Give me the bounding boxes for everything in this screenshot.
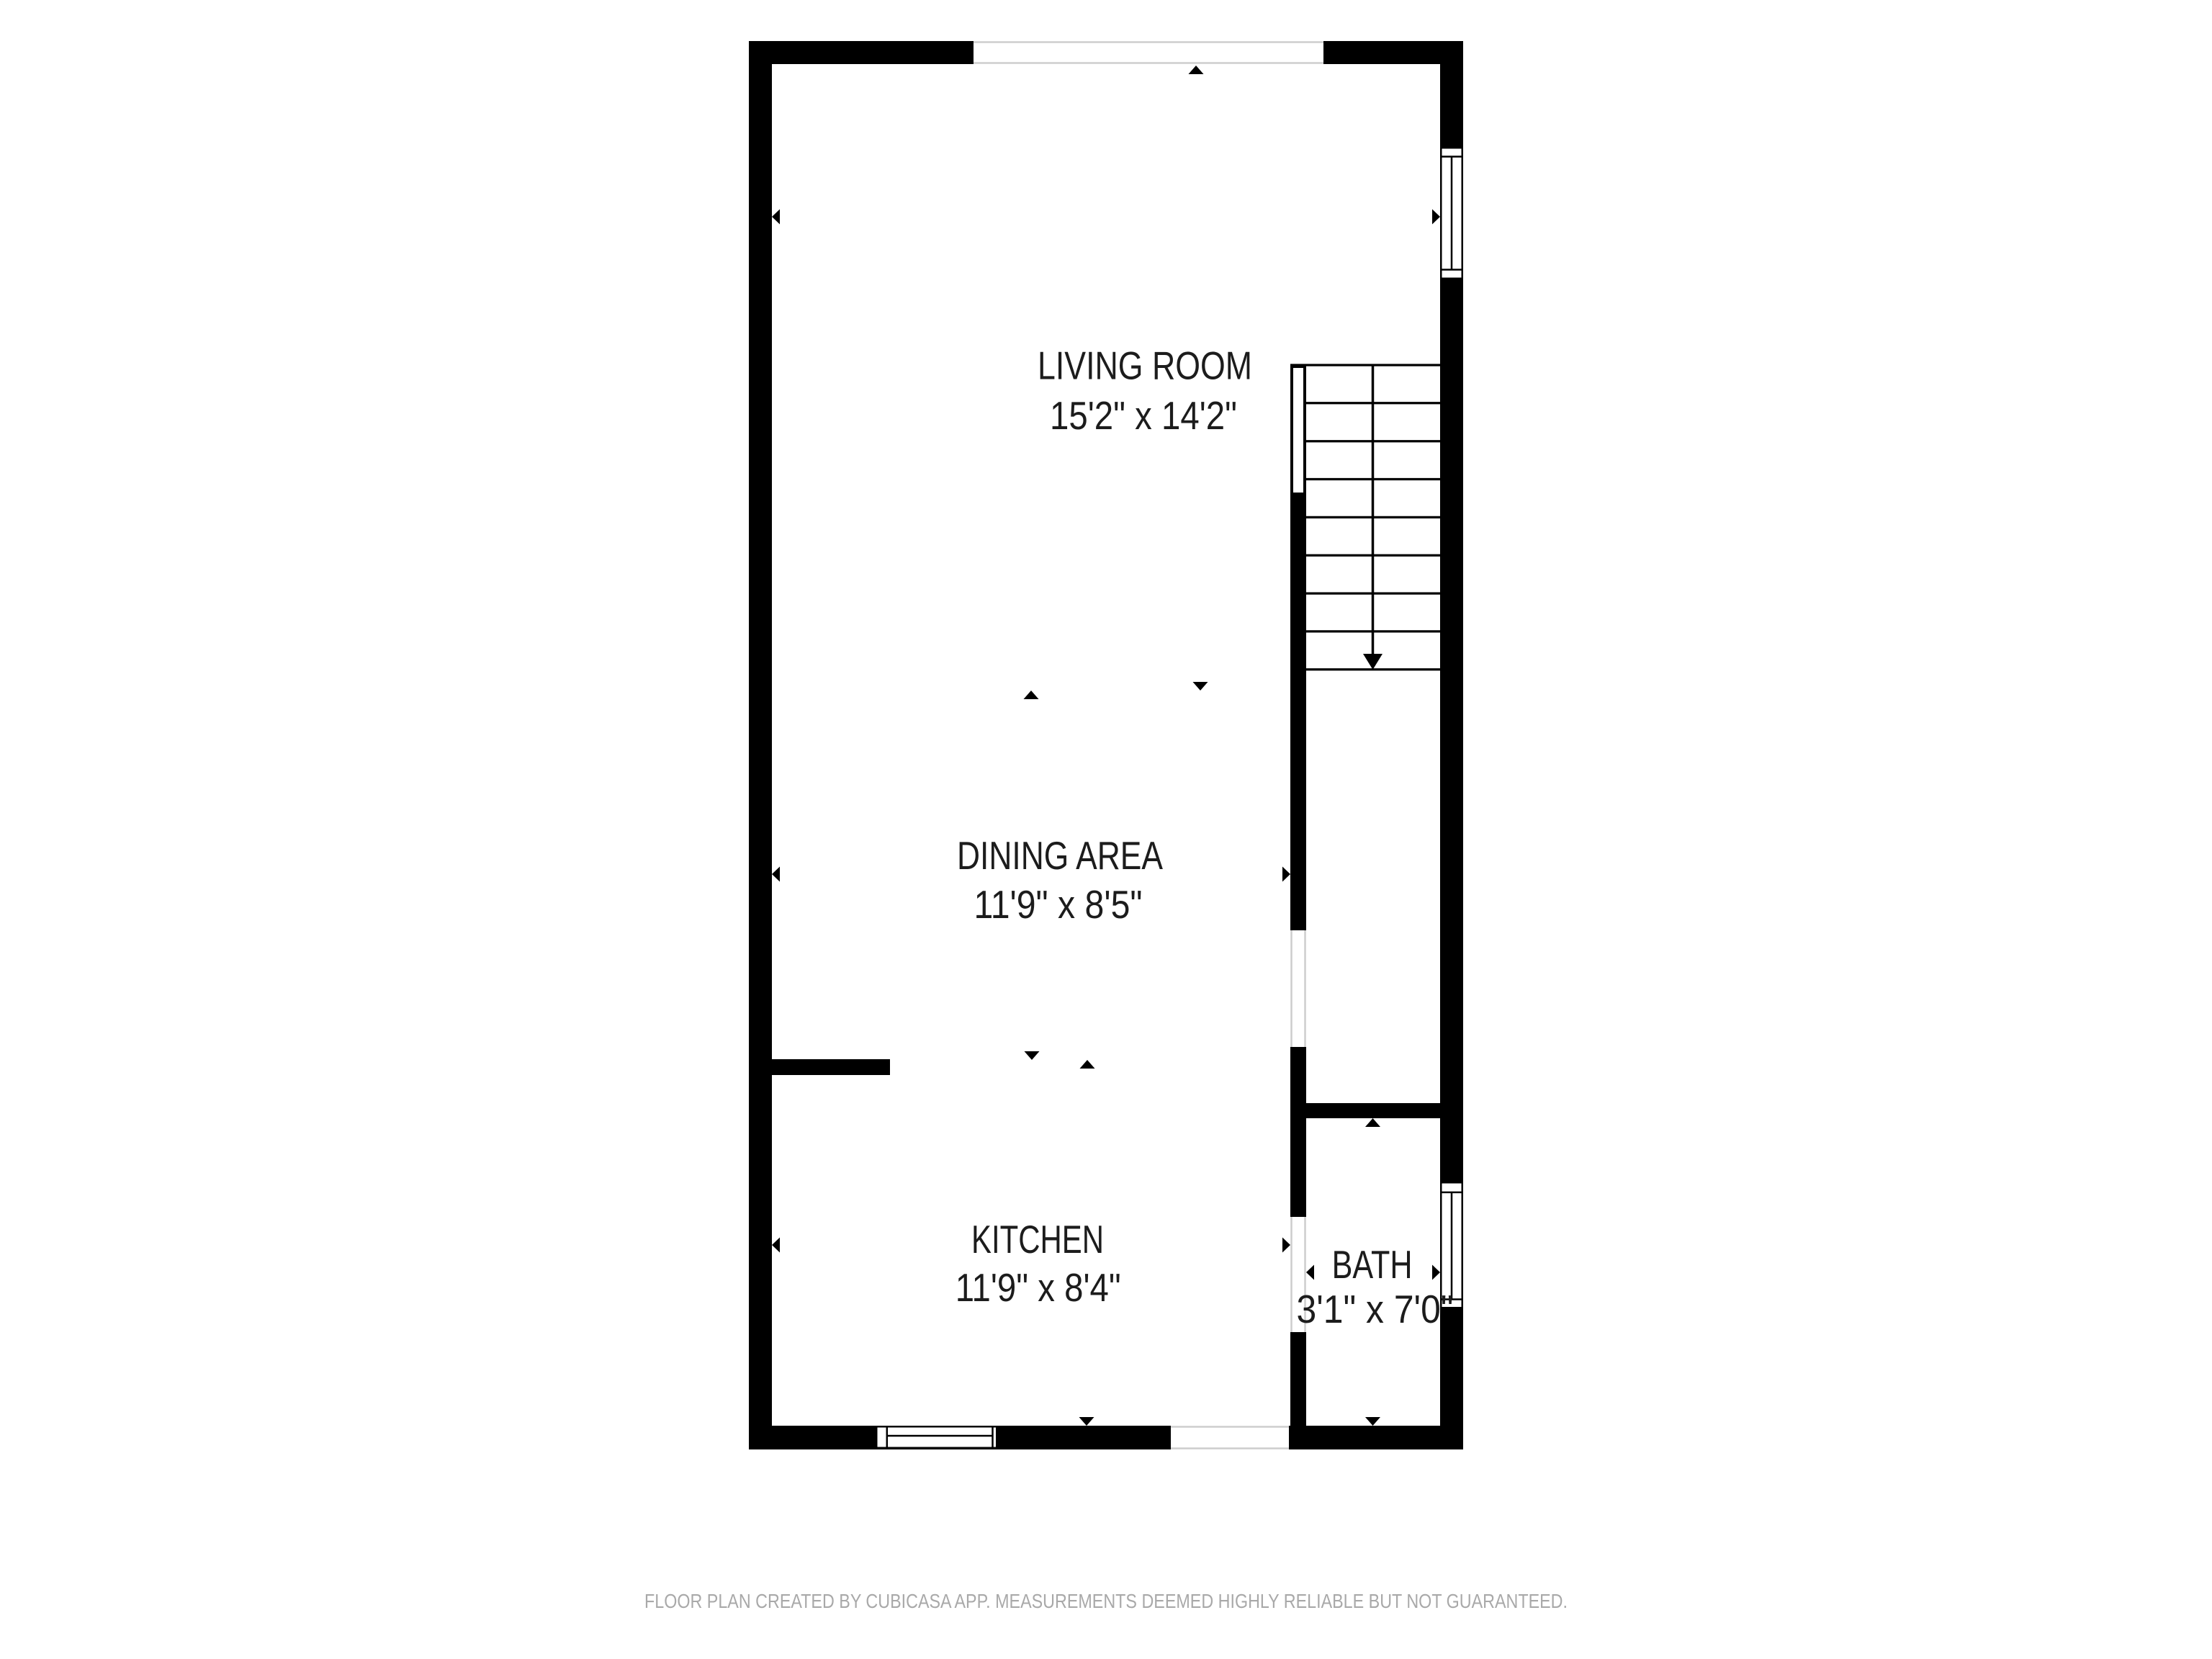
svg-text:BATH: BATH — [1332, 1242, 1413, 1287]
svg-text:FLOOR PLAN CREATED BY CUBICASA: FLOOR PLAN CREATED BY CUBICASA APP. MEAS… — [644, 1590, 1568, 1612]
svg-text:11'9" x 8'5": 11'9" x 8'5" — [974, 882, 1143, 927]
svg-text:KITCHEN: KITCHEN — [971, 1217, 1104, 1262]
svg-text:15'2" x 14'2": 15'2" x 14'2" — [1050, 393, 1237, 438]
svg-text:11'9" x 8'4": 11'9" x 8'4" — [956, 1265, 1121, 1310]
svg-text:3'1" x 7'0": 3'1" x 7'0" — [1297, 1287, 1454, 1331]
svg-text:DINING AREA: DINING AREA — [957, 833, 1163, 878]
svg-text:LIVING ROOM: LIVING ROOM — [1038, 343, 1252, 388]
